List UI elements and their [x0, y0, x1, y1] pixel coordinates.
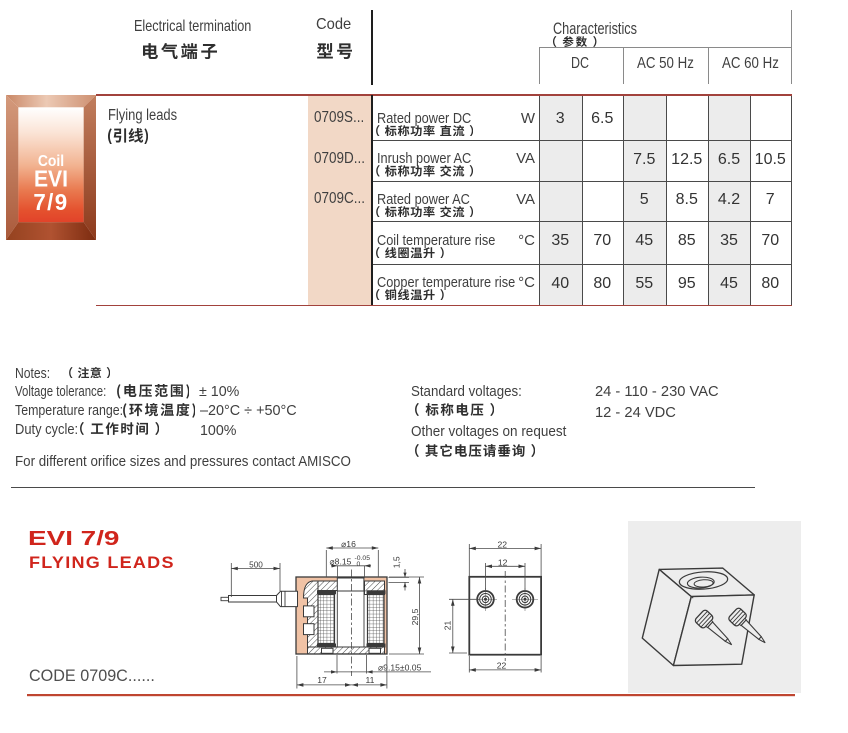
svg-text:21: 21 — [443, 621, 453, 631]
svg-text:29,5: 29,5 — [410, 608, 420, 625]
svg-text:1,5: 1,5 — [391, 556, 401, 568]
svg-text:0: 0 — [357, 561, 361, 568]
svg-text:⌀8.15: ⌀8.15 — [330, 556, 352, 566]
svg-text:22: 22 — [498, 539, 508, 549]
svg-text:7/9: 7/9 — [33, 188, 68, 215]
svg-text:17: 17 — [317, 675, 327, 685]
svg-text:⌀16: ⌀16 — [341, 539, 356, 549]
svg-text:11: 11 — [366, 675, 375, 685]
svg-text:500: 500 — [249, 560, 263, 569]
svg-text:12: 12 — [498, 557, 508, 567]
svg-text:22: 22 — [497, 660, 507, 670]
svg-text:⌀9.15±0.05: ⌀9.15±0.05 — [378, 662, 422, 672]
